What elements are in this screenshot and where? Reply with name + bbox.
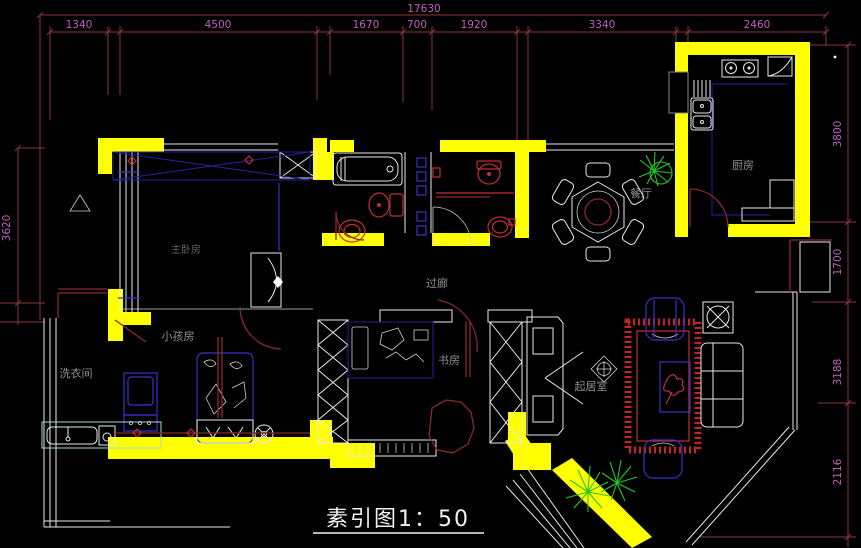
- tv-cabinet: [527, 317, 583, 435]
- dim-top-3: 1670: [353, 19, 380, 31]
- kids-bed: [197, 353, 253, 443]
- washing-machine: [124, 373, 157, 415]
- toilet-icon: [369, 193, 403, 217]
- door-swing-kitchen: [690, 189, 728, 227]
- vent-hatch: [694, 80, 710, 97]
- dim-top-7: 2460: [744, 19, 771, 31]
- floor-plan-canvas: 17630 1340 4500 1670 700 1920 3340 2460: [0, 0, 861, 548]
- room-label-dining: 餐厅: [630, 186, 652, 200]
- dim-left-1: 3620: [1, 215, 13, 242]
- flower-icon: [664, 375, 684, 396]
- washbasin-icon: [488, 217, 515, 237]
- cad-floorplan-screenshot: 17630 1340 4500 1670 700 1920 3340 2460: [0, 0, 861, 548]
- stove-icon: [722, 60, 758, 77]
- shaft-tiles: [417, 158, 426, 235]
- stray-dot: [834, 56, 837, 59]
- dim-right-3: 3188: [832, 359, 844, 386]
- dim-top-4: 700: [407, 19, 427, 31]
- fridge: [770, 180, 794, 208]
- room-living: 起居室: [527, 298, 743, 478]
- armchair-bottom: [644, 440, 682, 478]
- kitchen-counter: [712, 84, 788, 170]
- door-swing-master: [240, 307, 281, 349]
- dim-right-1: 3800: [832, 121, 844, 148]
- warning-triangle-icon: [70, 195, 90, 211]
- kitchen-sink-icon: [691, 98, 713, 130]
- room-dining: 餐厅: [551, 152, 672, 261]
- room-study: 书房: [318, 300, 532, 456]
- room-label-study: 书房: [438, 354, 460, 367]
- sliding-door: [488, 310, 532, 322]
- dim-right-4: 2116: [832, 458, 844, 485]
- desk: [348, 322, 433, 378]
- room-label-laundry: 洗衣间: [60, 366, 93, 380]
- dim-top-overall: 17630: [407, 3, 440, 15]
- room-master-bedroom: 主卧房: [70, 152, 310, 349]
- room-kids: 小孩房: [115, 330, 310, 443]
- title-block: 素引图1：50: [313, 507, 484, 533]
- sliding-door: [380, 310, 452, 322]
- room-label-kids: 小孩房: [162, 330, 195, 343]
- corner-shelf: [768, 57, 792, 76]
- dim-right-2: 1700: [832, 249, 844, 276]
- dim-top-1: 1340: [66, 19, 93, 31]
- door-swing-living: [438, 300, 477, 352]
- dimension-chain-right: 3800 1700 3188 2116: [700, 42, 856, 547]
- pillow-icon: [204, 360, 216, 367]
- dim-top-2: 4500: [205, 19, 232, 31]
- pillow-icon: [230, 362, 242, 369]
- balcony-window: [800, 242, 830, 292]
- windows-thin-walls: [44, 144, 832, 548]
- room-label-kitchen: 厨房: [732, 159, 754, 172]
- toilet-icon: [477, 161, 501, 184]
- room-label-corridor: 过廊: [426, 276, 448, 290]
- dining-table: [572, 182, 624, 242]
- side-table: [703, 302, 733, 333]
- valve-icon: [433, 168, 440, 177]
- dim-top-5: 1920: [461, 19, 488, 31]
- blanket-lines: [206, 384, 226, 414]
- room-label-master-bedroom: 主卧房: [171, 243, 201, 256]
- plant-icon: [639, 152, 672, 186]
- bathtub-icon: [333, 153, 402, 185]
- sofa-right: [701, 343, 743, 427]
- rug: [628, 322, 698, 450]
- dim-top-6: 3340: [589, 19, 616, 31]
- compass-symbol-icon: [591, 356, 617, 382]
- dining-chairs: [551, 163, 645, 261]
- drawing-title: 素引图1：50: [326, 507, 470, 532]
- room-kitchen: 厨房: [690, 57, 794, 227]
- laundry-sink: [47, 427, 97, 444]
- bathrooms: [333, 152, 515, 245]
- room-corridor: 过廊: [426, 276, 448, 290]
- kitchen-duct: [669, 72, 688, 113]
- walls: [98, 42, 810, 548]
- dimension-chain-left: 3620: [0, 145, 45, 325]
